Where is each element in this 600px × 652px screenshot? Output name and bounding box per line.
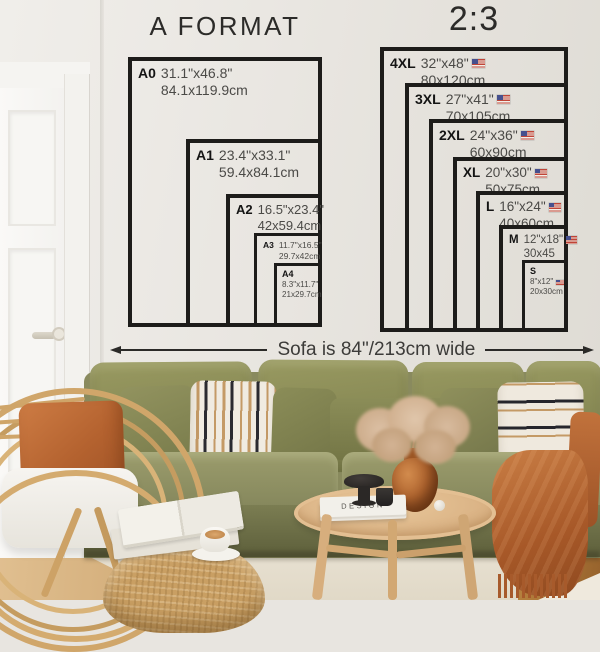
us-flag-icon bbox=[497, 95, 510, 104]
size-code: A1 bbox=[196, 147, 214, 164]
size-inches: 32"x48" bbox=[421, 55, 469, 72]
size-inches: 27"x41" bbox=[446, 91, 494, 108]
arrowhead-left-icon bbox=[110, 346, 121, 354]
size-inches: 20"x30" bbox=[485, 165, 531, 182]
chart-title-a-format: A FORMAT bbox=[118, 11, 332, 42]
size-frame-s: S8"x12"20x30cm bbox=[522, 260, 568, 332]
size-inches: 12"x18" bbox=[524, 233, 564, 247]
size-inches: 23.4"x33.1" bbox=[219, 147, 290, 164]
size-inches: 16.5"x23.4" bbox=[258, 202, 324, 218]
size-code: M bbox=[509, 233, 519, 247]
arrow-line bbox=[485, 349, 583, 351]
us-flag-icon bbox=[472, 59, 485, 68]
size-inches: 24"x36" bbox=[470, 127, 518, 144]
us-flag-icon bbox=[556, 280, 564, 285]
size-code: 2XL bbox=[439, 127, 465, 144]
size-cm: 21x29.7cm bbox=[282, 290, 322, 300]
us-flag-icon bbox=[549, 203, 562, 212]
size-cm: 42x59.4cm bbox=[258, 218, 324, 234]
size-inches: 8.3"x11.7" bbox=[282, 280, 318, 290]
arrowhead-right-icon bbox=[583, 346, 594, 354]
us-flag-icon bbox=[521, 131, 534, 140]
sofa-width-arrow: Sofa is 84"/213cm wide bbox=[110, 337, 594, 363]
chart-title-2-3: 2:3 bbox=[380, 0, 568, 39]
size-cm: 59.4x84.1cm bbox=[219, 164, 299, 181]
size-inches: 16"x24" bbox=[499, 199, 545, 216]
size-inches: 31.1"x46.8" bbox=[161, 65, 232, 82]
size-code: A0 bbox=[138, 65, 156, 82]
size-inches: 11.7"x16.5" bbox=[279, 240, 322, 251]
us-flag-icon bbox=[566, 236, 577, 244]
size-cm: 84.1x119.9cm bbox=[161, 82, 248, 99]
sofa-width-note: Sofa is 84"/213cm wide bbox=[267, 339, 485, 361]
size-code: 4XL bbox=[390, 55, 416, 72]
size-code: A2 bbox=[236, 202, 253, 218]
arrow-line bbox=[121, 349, 267, 351]
size-code: L bbox=[486, 199, 494, 216]
size-guide-overlay: A FORMAT 2:3 A031.1"x46.8"84.1x119.9cmA1… bbox=[0, 0, 600, 600]
size-code: S bbox=[530, 266, 536, 277]
us-flag-icon bbox=[535, 169, 548, 178]
size-cm: 20x30cm bbox=[530, 287, 564, 297]
size-cm: 29.7x42cm bbox=[279, 251, 322, 262]
size-code: A4 bbox=[282, 269, 294, 280]
size-code: XL bbox=[463, 165, 480, 182]
size-frame-a4: A48.3"x11.7"21x29.7cm bbox=[274, 263, 322, 327]
size-inches: 8"x12" bbox=[530, 277, 553, 287]
size-code: 3XL bbox=[415, 91, 441, 108]
size-code: A3 bbox=[263, 240, 274, 251]
